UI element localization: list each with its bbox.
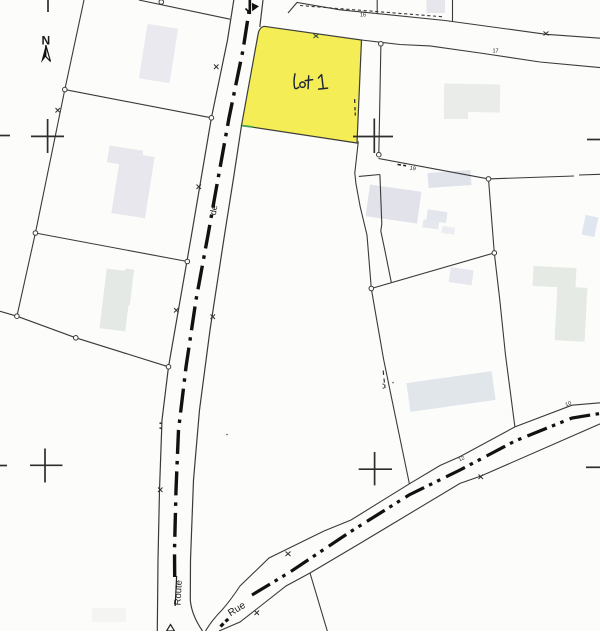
svg-text:17: 17 (493, 49, 499, 55)
svg-text:16: 16 (360, 13, 366, 19)
svg-text:de: de (208, 204, 220, 216)
svg-text:Route: Route (173, 580, 185, 606)
svg-text:19: 19 (409, 166, 416, 173)
